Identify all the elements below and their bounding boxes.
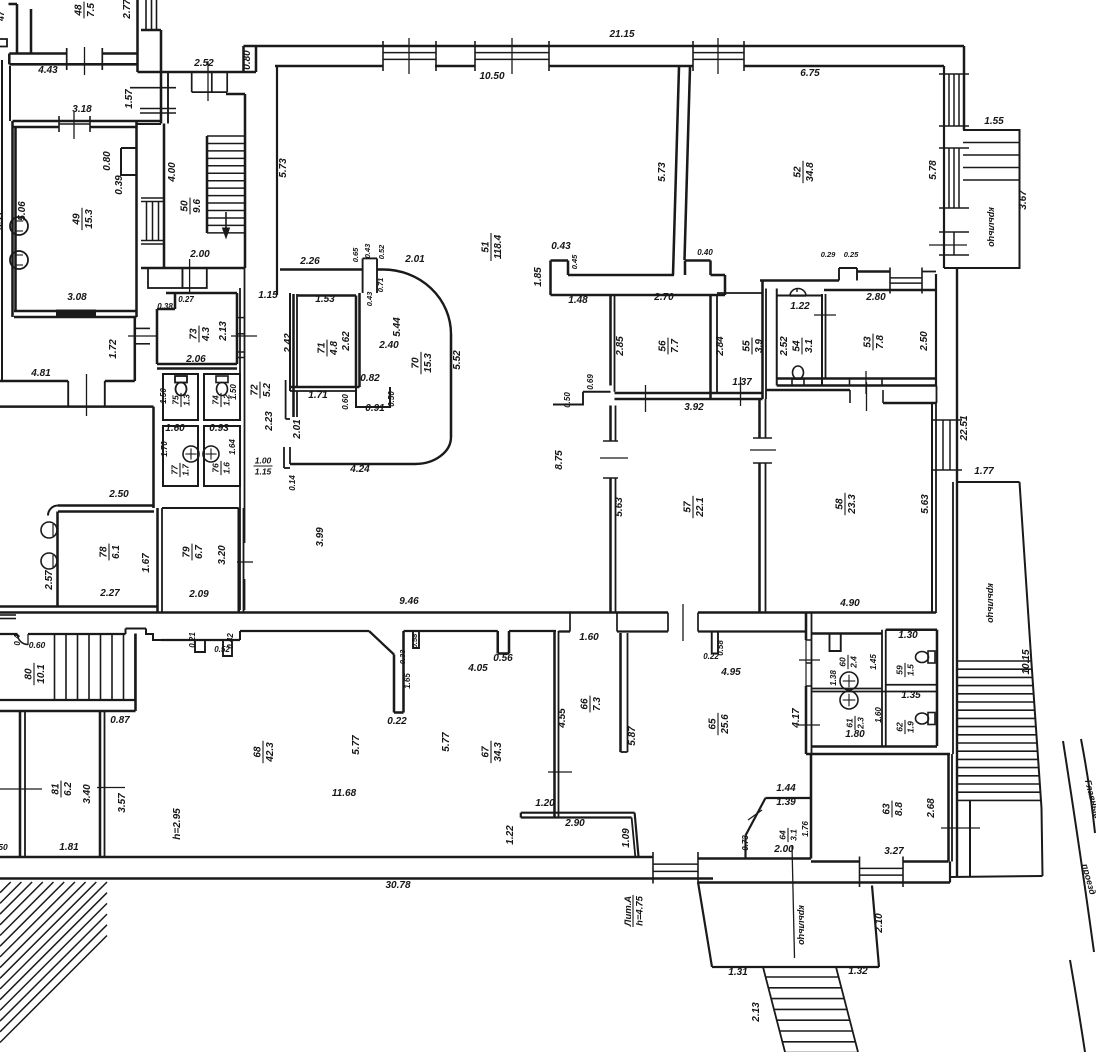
svg-text:1.39: 1.39 — [776, 797, 796, 808]
svg-text:5.73: 5.73 — [278, 158, 289, 178]
svg-text:2.57: 2.57 — [44, 570, 55, 591]
svg-text:5.44: 5.44 — [392, 317, 403, 337]
svg-text:4.55: 4.55 — [557, 708, 568, 729]
svg-text:75: 75 — [171, 395, 181, 405]
svg-text:67: 67 — [481, 746, 492, 758]
svg-text:0.58: 0.58 — [716, 640, 725, 656]
svg-text:0.33: 0.33 — [398, 649, 407, 664]
svg-text:1.70: 1.70 — [160, 441, 169, 457]
svg-text:56: 56 — [658, 340, 669, 352]
svg-text:55: 55 — [742, 340, 753, 352]
svg-text:5.06: 5.06 — [17, 201, 28, 221]
svg-text:h=4.75: h=4.75 — [635, 895, 646, 926]
svg-text:0.4: 0.4 — [13, 634, 22, 646]
svg-text:3.92: 3.92 — [684, 402, 704, 413]
svg-text:1.60: 1.60 — [165, 423, 185, 434]
svg-text:2.40: 2.40 — [378, 340, 399, 351]
svg-text:4.43: 4.43 — [37, 65, 58, 76]
svg-text:63: 63 — [882, 803, 893, 815]
svg-text:2.62: 2.62 — [341, 331, 352, 352]
svg-text:74: 74 — [211, 395, 221, 405]
svg-text:1.15: 1.15 — [255, 467, 272, 477]
svg-text:крыльцо: крыльцо — [987, 207, 997, 247]
svg-text:6.75: 6.75 — [800, 68, 820, 79]
svg-text:5.63: 5.63 — [614, 497, 625, 517]
svg-text:1.44: 1.44 — [776, 783, 796, 794]
svg-text:1.85: 1.85 — [533, 267, 544, 287]
svg-text:2.00: 2.00 — [189, 249, 210, 260]
svg-text:0.52: 0.52 — [377, 244, 386, 259]
svg-text:118.4: 118.4 — [493, 234, 504, 259]
svg-text:76: 76 — [211, 463, 221, 473]
svg-text:0.42: 0.42 — [226, 633, 235, 649]
svg-text:3.1: 3.1 — [789, 829, 799, 841]
svg-text:59: 59 — [895, 665, 905, 675]
svg-text:0.56: 0.56 — [493, 653, 513, 664]
svg-text:2.68: 2.68 — [926, 798, 937, 819]
svg-text:1.30: 1.30 — [898, 630, 918, 641]
svg-text:81: 81 — [51, 783, 62, 795]
svg-text:1.77: 1.77 — [974, 466, 994, 477]
svg-text:1.00: 1.00 — [255, 456, 272, 466]
svg-text:8.75: 8.75 — [554, 450, 565, 470]
svg-text:1.35: 1.35 — [901, 690, 921, 701]
svg-text:крыльцо: крыльцо — [797, 905, 807, 945]
svg-text:h=2.95: h=2.95 — [172, 808, 183, 840]
svg-text:1.38: 1.38 — [829, 670, 838, 686]
svg-text:0.80: 0.80 — [242, 50, 253, 70]
svg-text:2.23: 2.23 — [264, 411, 275, 432]
svg-text:1.7: 1.7 — [181, 463, 191, 476]
svg-text:9.46: 9.46 — [399, 596, 419, 607]
svg-text:51: 51 — [481, 241, 492, 253]
svg-text:1.32: 1.32 — [848, 966, 868, 977]
svg-text:0.27: 0.27 — [178, 295, 194, 304]
svg-text:1.09: 1.09 — [621, 828, 632, 848]
svg-text:7.3: 7.3 — [592, 697, 603, 711]
svg-text:42.3: 42.3 — [265, 742, 276, 763]
svg-text:5.87: 5.87 — [627, 726, 638, 746]
svg-text:4.24: 4.24 — [349, 464, 370, 475]
svg-text:25.6: 25.6 — [720, 714, 731, 735]
svg-text:0.69: 0.69 — [586, 374, 595, 390]
svg-text:1.60: 1.60 — [874, 707, 883, 723]
svg-text:3.1: 3.1 — [804, 339, 815, 353]
svg-text:22.51: 22.51 — [959, 415, 970, 441]
svg-text:71: 71 — [317, 342, 328, 354]
svg-text:6.1: 6.1 — [111, 545, 122, 559]
svg-text:0.38: 0.38 — [157, 302, 173, 311]
svg-text:15.3: 15.3 — [84, 209, 95, 229]
svg-text:2.26: 2.26 — [299, 256, 320, 267]
svg-text:6.2: 6.2 — [63, 782, 74, 796]
svg-text:0.87: 0.87 — [110, 715, 130, 726]
svg-text:1.48: 1.48 — [568, 295, 588, 306]
svg-text:0.60: 0.60 — [29, 640, 46, 650]
svg-text:4.90: 4.90 — [839, 598, 860, 609]
svg-text:2.52: 2.52 — [193, 58, 214, 69]
svg-text:2.01: 2.01 — [292, 419, 303, 440]
svg-text:4.3: 4.3 — [201, 327, 212, 342]
svg-text:0.58: 0.58 — [410, 633, 419, 648]
svg-text:2.42: 2.42 — [283, 333, 294, 354]
svg-text:1.50: 1.50 — [159, 388, 168, 404]
svg-text:7.8: 7.8 — [875, 335, 886, 349]
svg-text:53: 53 — [863, 336, 874, 348]
svg-text:3.27: 3.27 — [884, 846, 904, 857]
svg-text:1.50: 1.50 — [229, 384, 238, 400]
svg-text:0.39: 0.39 — [114, 175, 125, 195]
svg-text:0.43: 0.43 — [551, 241, 571, 252]
svg-text:1.31: 1.31 — [728, 967, 748, 978]
svg-text:0.65: 0.65 — [351, 247, 360, 262]
svg-text:1.71: 1.71 — [308, 390, 328, 401]
svg-text:34.8: 34.8 — [805, 162, 816, 182]
svg-text:2.06: 2.06 — [185, 354, 206, 365]
svg-text:2.10: 2.10 — [874, 913, 885, 934]
svg-text:6.7: 6.7 — [194, 545, 205, 559]
svg-text:10.1: 10.1 — [36, 664, 47, 684]
svg-text:3.40: 3.40 — [82, 784, 93, 804]
svg-text:48: 48 — [74, 4, 85, 17]
svg-text:2.50: 2.50 — [108, 489, 129, 500]
svg-text:62: 62 — [895, 722, 905, 732]
svg-text:2.3: 2.3 — [856, 717, 866, 730]
svg-text:0.43: 0.43 — [363, 243, 372, 258]
svg-text:60: 60 — [838, 657, 848, 667]
svg-text:1.9: 1.9 — [906, 721, 916, 733]
svg-text:5.77: 5.77 — [351, 735, 362, 755]
svg-text:1.67: 1.67 — [141, 553, 152, 573]
svg-text:61: 61 — [845, 718, 855, 728]
svg-text:0.25: 0.25 — [844, 250, 859, 259]
svg-text:1.81: 1.81 — [59, 842, 79, 853]
svg-text:64: 64 — [778, 830, 788, 840]
svg-text:2.13: 2.13 — [218, 321, 229, 342]
svg-text:1.53: 1.53 — [315, 294, 335, 305]
svg-text:2.09: 2.09 — [188, 589, 209, 600]
svg-text:57: 57 — [683, 501, 694, 513]
svg-text:4.17: 4.17 — [791, 708, 802, 729]
svg-text:66: 66 — [580, 698, 591, 710]
svg-text:1.45: 1.45 — [869, 654, 878, 670]
svg-text:10.15: 10.15 — [1021, 649, 1032, 674]
svg-text:2.90: 2.90 — [564, 818, 585, 829]
svg-text:65: 65 — [708, 718, 719, 730]
svg-text:1.60: 1.60 — [579, 632, 599, 643]
svg-text:1.22: 1.22 — [790, 301, 810, 312]
svg-text:1.80: 1.80 — [845, 729, 865, 740]
svg-text:22.1: 22.1 — [695, 497, 706, 518]
svg-text:0.50: 0.50 — [387, 391, 396, 407]
svg-text:78: 78 — [99, 546, 110, 558]
svg-text:34.3: 34.3 — [493, 742, 504, 762]
svg-text:79: 79 — [182, 546, 193, 558]
svg-text:0.71: 0.71 — [376, 278, 385, 293]
svg-text:73: 73 — [189, 328, 200, 340]
svg-text:0.43: 0.43 — [365, 291, 374, 306]
svg-text:4.8: 4.8 — [329, 341, 340, 356]
svg-text:23.3: 23.3 — [847, 494, 858, 515]
svg-text:47: 47 — [0, 10, 6, 22]
svg-text:5.17: 5.17 — [0, 210, 5, 230]
svg-text:4.05: 4.05 — [467, 663, 488, 674]
svg-text:1.72: 1.72 — [108, 339, 119, 359]
svg-text:5.63: 5.63 — [920, 494, 931, 514]
svg-text:50: 50 — [180, 200, 191, 212]
svg-text:0.91: 0.91 — [365, 403, 385, 414]
svg-text:70: 70 — [411, 357, 422, 369]
svg-text:1.22: 1.22 — [505, 825, 516, 845]
svg-text:58: 58 — [835, 498, 846, 510]
svg-text:1.6: 1.6 — [222, 462, 232, 474]
svg-text:0.21: 0.21 — [188, 632, 197, 648]
svg-text:9.6: 9.6 — [192, 199, 203, 213]
svg-text:1.55: 1.55 — [984, 116, 1004, 127]
svg-text:1.76: 1.76 — [801, 821, 810, 837]
svg-text:0.82: 0.82 — [360, 373, 380, 384]
svg-text:3.57: 3.57 — [117, 793, 128, 813]
svg-text:2.01: 2.01 — [404, 254, 425, 265]
svg-text:21.15: 21.15 — [608, 29, 634, 40]
svg-text:5.73: 5.73 — [657, 162, 668, 182]
svg-text:0.29: 0.29 — [821, 250, 836, 259]
svg-text:77: 77 — [170, 464, 180, 475]
svg-text:30.78: 30.78 — [385, 880, 410, 891]
svg-text:2.84: 2.84 — [715, 336, 726, 357]
svg-text:1.57: 1.57 — [124, 89, 135, 109]
svg-text:2.50: 2.50 — [919, 331, 930, 352]
svg-text:7.5: 7.5 — [86, 3, 97, 17]
svg-text:3.99: 3.99 — [315, 527, 326, 547]
svg-text:10.50: 10.50 — [479, 71, 504, 82]
svg-text:5.77: 5.77 — [441, 732, 452, 752]
svg-text:0.50: 0.50 — [563, 392, 572, 408]
svg-text:15.3: 15.3 — [423, 353, 434, 373]
svg-text:0.14: 0.14 — [288, 475, 297, 491]
svg-text:2.00: 2.00 — [773, 844, 794, 855]
svg-text:50: 50 — [0, 842, 8, 852]
svg-text:8.8: 8.8 — [894, 802, 905, 816]
svg-text:1.64: 1.64 — [228, 439, 237, 455]
svg-text:0.80: 0.80 — [102, 151, 113, 171]
svg-text:0.93: 0.93 — [209, 423, 229, 434]
svg-text:0.45: 0.45 — [570, 254, 579, 269]
svg-text:1.5: 1.5 — [906, 664, 916, 676]
svg-text:1.65: 1.65 — [403, 673, 412, 689]
svg-text:1.37: 1.37 — [732, 377, 752, 388]
svg-text:1.20: 1.20 — [535, 798, 555, 809]
svg-text:0.73: 0.73 — [741, 835, 750, 851]
svg-text:1.15: 1.15 — [258, 290, 278, 301]
svg-text:5.78: 5.78 — [928, 160, 939, 180]
svg-text:11.68: 11.68 — [332, 788, 357, 799]
svg-text:4.95: 4.95 — [720, 667, 741, 678]
svg-text:3.08: 3.08 — [67, 292, 87, 303]
svg-text:3.9: 3.9 — [754, 339, 765, 353]
svg-text:2.52: 2.52 — [779, 336, 790, 357]
svg-text:3.20: 3.20 — [217, 545, 228, 565]
svg-text:52: 52 — [793, 166, 804, 178]
svg-text:3.18: 3.18 — [72, 104, 92, 115]
svg-text:крыльцо: крыльцо — [986, 583, 996, 623]
svg-text:2.85: 2.85 — [615, 336, 626, 357]
svg-text:0.22: 0.22 — [387, 716, 407, 727]
svg-text:2.13: 2.13 — [751, 1002, 762, 1023]
svg-text:5.2: 5.2 — [262, 383, 273, 397]
svg-text:5.52: 5.52 — [452, 350, 463, 370]
svg-text:2.27: 2.27 — [99, 588, 120, 599]
svg-text:4.81: 4.81 — [30, 368, 51, 379]
svg-text:49: 49 — [72, 213, 83, 226]
svg-text:Лит.А: Лит.А — [623, 896, 634, 927]
svg-text:72: 72 — [250, 384, 261, 396]
svg-text:0.40: 0.40 — [697, 248, 713, 257]
svg-text:3.67: 3.67 — [1018, 190, 1029, 210]
svg-text:4.00: 4.00 — [167, 162, 178, 183]
svg-text:2.77: 2.77 — [122, 0, 133, 20]
svg-text:0.60: 0.60 — [341, 394, 350, 410]
svg-text:54: 54 — [792, 340, 803, 352]
svg-text:2.70: 2.70 — [653, 292, 674, 303]
svg-text:80: 80 — [24, 668, 35, 680]
svg-text:2.80: 2.80 — [865, 292, 886, 303]
svg-text:7.7: 7.7 — [670, 339, 681, 353]
svg-text:68: 68 — [253, 746, 264, 758]
svg-text:2.4: 2.4 — [849, 656, 859, 669]
